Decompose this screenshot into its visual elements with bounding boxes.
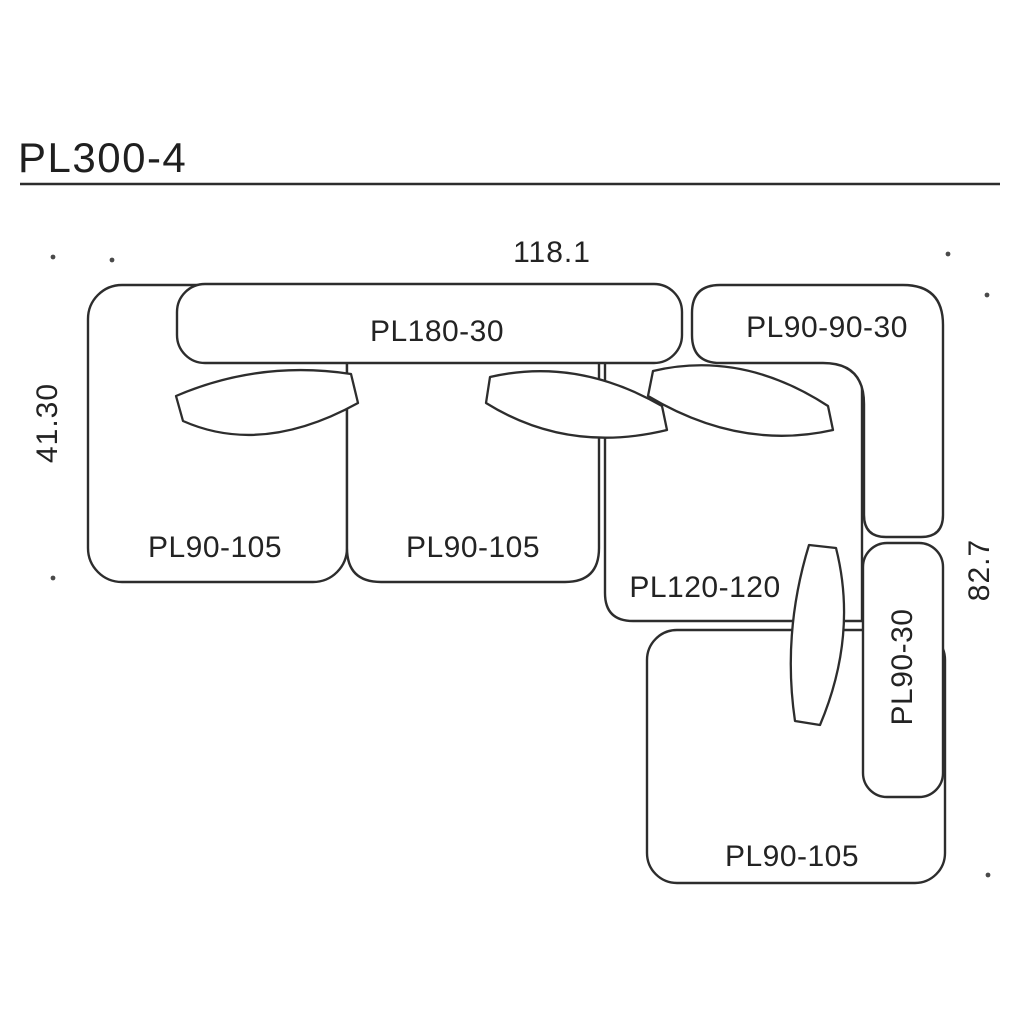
speck-dot <box>946 252 951 257</box>
speck-dot <box>51 255 56 260</box>
module-label-seat-bottom: PL90-105 <box>725 840 859 873</box>
module-label-corner-seat: PL120-120 <box>629 571 780 604</box>
speck-dot <box>51 576 56 581</box>
dimension-left-depth: 41.30 <box>31 383 64 463</box>
module-label-backrest-right: PL90-30 <box>886 609 919 726</box>
speck-dot <box>110 258 115 263</box>
diagram-page: PL300-4 118.1 41.30 82.7 PL180-30 PL90-9… <box>0 0 1024 1024</box>
dimension-top-width: 118.1 <box>513 236 591 269</box>
page-title: PL300-4 <box>18 134 187 181</box>
speck-dot <box>986 873 991 878</box>
sofa-plan-diagram: PL300-4 118.1 41.30 82.7 PL180-30 PL90-9… <box>0 0 1024 1024</box>
speck-dot <box>985 293 990 298</box>
module-label-seat-middle: PL90-105 <box>406 531 540 564</box>
module-label-corner-backrest: PL90-90-30 <box>746 311 908 344</box>
module-label-seat-left: PL90-105 <box>148 531 282 564</box>
module-label-backrest-long: PL180-30 <box>370 315 504 348</box>
dimension-right-depth: 82.7 <box>963 539 996 601</box>
